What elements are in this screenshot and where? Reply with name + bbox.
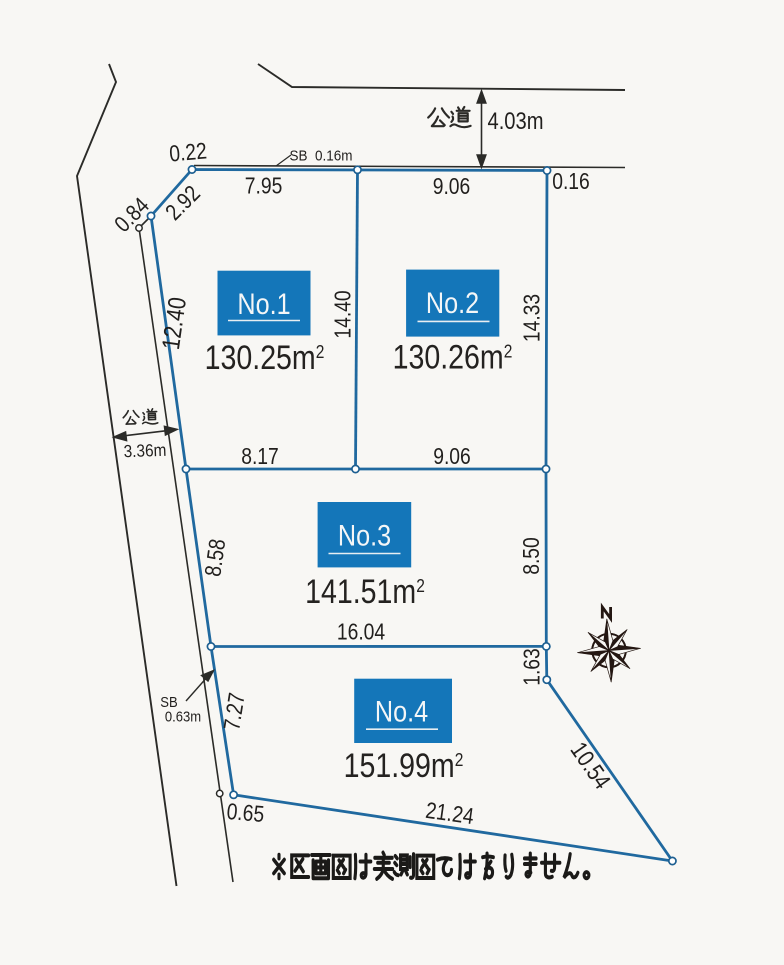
svg-text:9.06: 9.06 [433,175,471,200]
svg-text:8.58: 8.58 [201,537,231,578]
svg-text:No.4: No.4 [375,694,428,728]
svg-text:SB: SB [160,694,177,710]
svg-text:SB 0.16m: SB 0.16m [290,148,353,165]
svg-text:4.03m: 4.03m [487,107,543,134]
svg-text:1.63: 1.63 [520,648,545,686]
svg-text:No.2: No.2 [426,286,479,320]
svg-text:0.65: 0.65 [226,799,266,827]
svg-text:16.04: 16.04 [337,620,385,645]
svg-text:130.25m2: 130.25m2 [205,339,325,377]
svg-text:9.06: 9.06 [433,445,471,470]
svg-text:0.63m: 0.63m [165,709,201,725]
svg-text:130.26m2: 130.26m2 [393,338,513,376]
svg-text:14.40: 14.40 [331,290,356,338]
svg-text:141.51m2: 141.51m2 [305,573,425,611]
svg-text:0.22: 0.22 [168,139,208,167]
svg-text:0.16: 0.16 [552,170,590,195]
svg-text:3.36m: 3.36m [123,441,166,462]
svg-text:151.99m2: 151.99m2 [344,747,464,785]
svg-text:8.17: 8.17 [241,445,279,470]
svg-text:No.1: No.1 [237,287,290,321]
svg-text:8.50: 8.50 [519,537,544,575]
svg-text:No.3: No.3 [338,518,391,552]
svg-text:7.95: 7.95 [245,174,283,199]
svg-text:14.33: 14.33 [520,294,545,342]
